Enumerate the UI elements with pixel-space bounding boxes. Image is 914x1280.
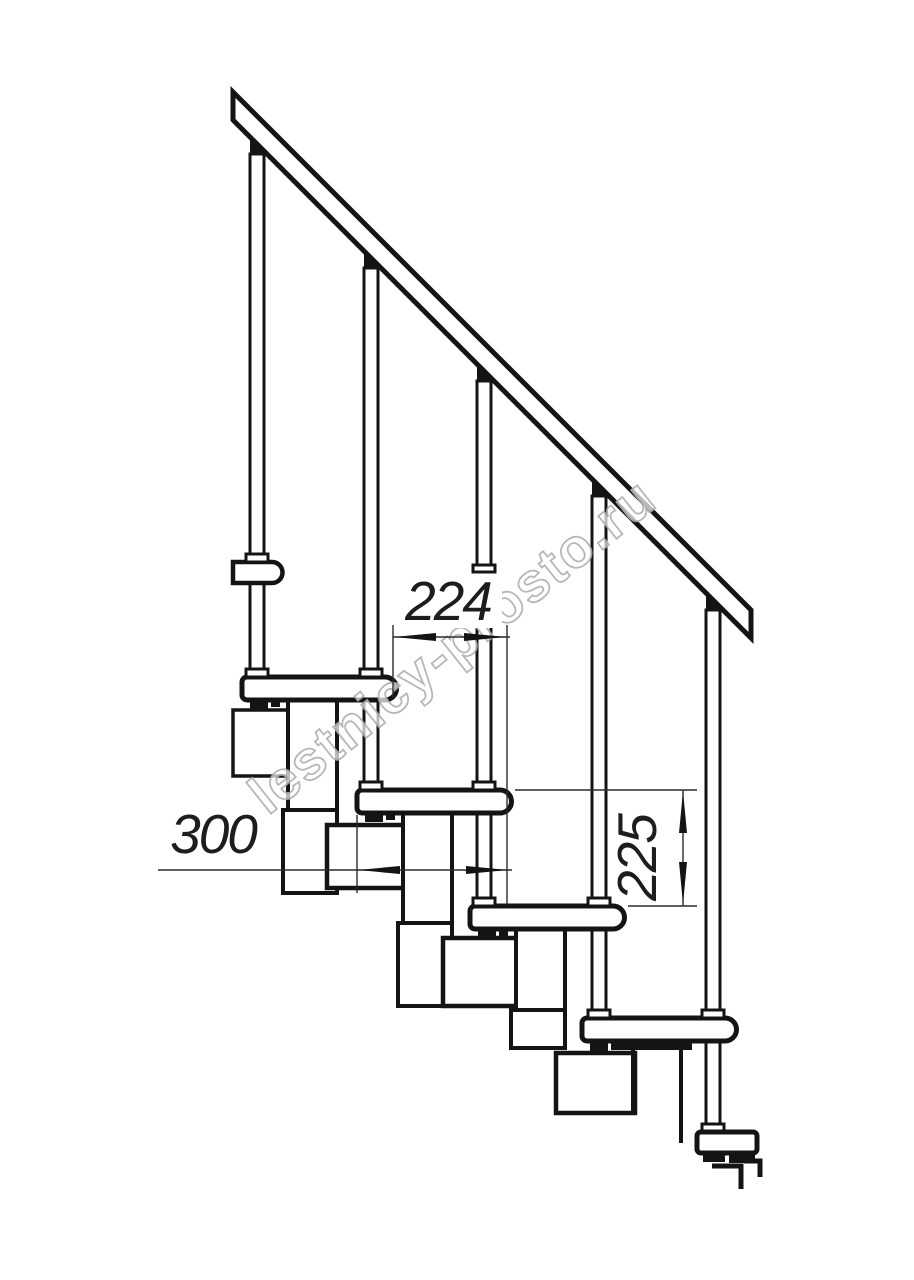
tread-0-fragment [233,562,283,583]
support-module-4 [633,1049,681,1143]
dim-depth-value: 300 [170,803,258,865]
dim-rise-value: 225 [606,813,668,902]
floor-break-line [712,1166,741,1189]
staircase-drawing: lestnicy-prosto.ru 224 300 [0,0,914,1280]
baluster-1 [250,154,264,669]
tread-3 [470,906,625,929]
staircase-drawing-page: lestnicy-prosto.ru 224 300 [0,0,914,1280]
floor-mount [697,1132,760,1189]
baluster-4 [592,496,606,1010]
floor-break-line-2 [744,1161,760,1177]
bracket-tread-4 [590,1042,692,1052]
tread-4 [582,1018,737,1041]
bracket-tread-1 [250,699,280,709]
floor-bracket [697,1132,757,1153]
dim-run-value: 224 [404,570,491,632]
tread-2 [357,790,512,813]
baluster-5 [706,610,720,1124]
bracket-tread-2 [365,812,395,822]
